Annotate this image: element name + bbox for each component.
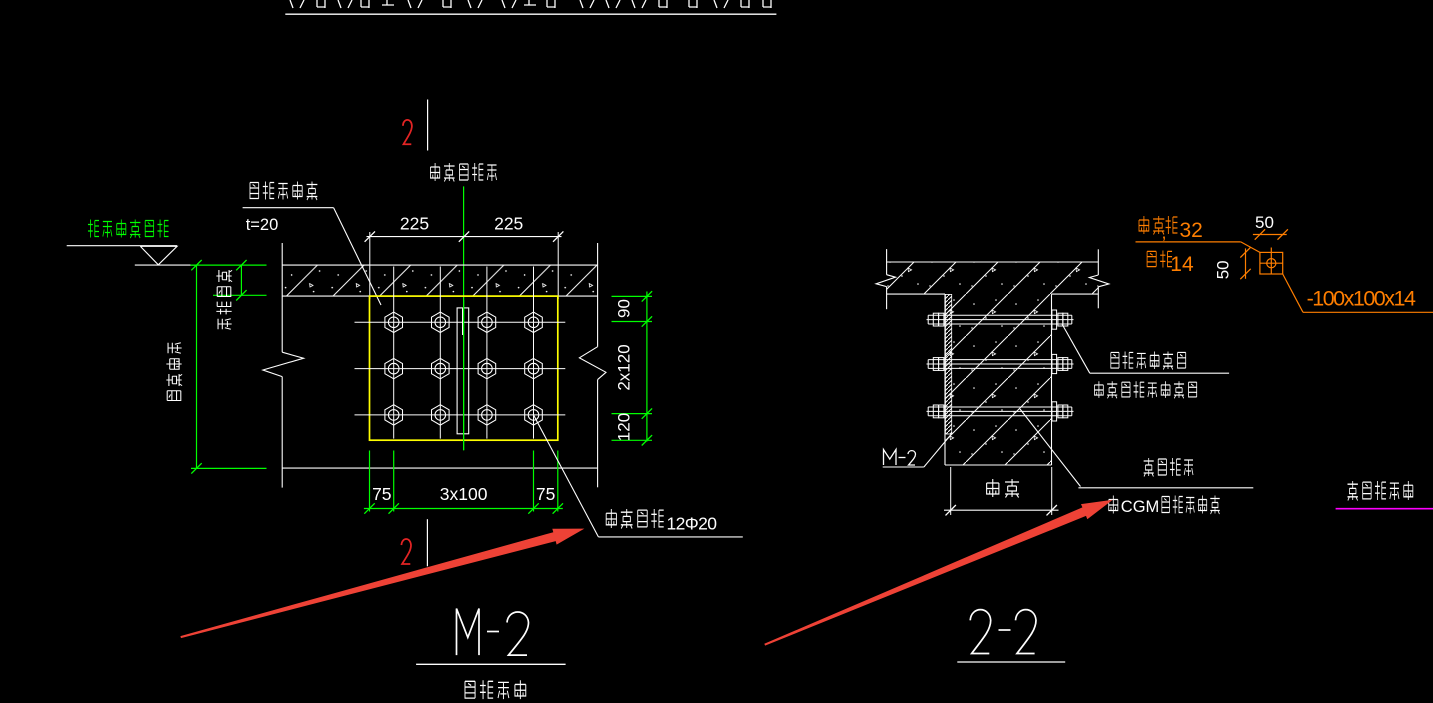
svg-text:t=20: t=20 [246,216,279,234]
svg-text:14: 14 [1170,253,1194,276]
svg-text:90: 90 [615,299,634,318]
svg-text:50: 50 [1214,260,1233,279]
svg-text:120: 120 [615,413,634,441]
svg-text:225: 225 [400,214,429,234]
svg-text:3x100: 3x100 [440,484,488,504]
svg-text:-100x100x14: -100x100x14 [1307,287,1416,311]
svg-text:12Φ20: 12Φ20 [667,514,718,534]
svg-text:32: 32 [1180,219,1203,242]
svg-text:,: , [1162,223,1167,243]
svg-text:75: 75 [372,484,391,504]
svg-text:2x120: 2x120 [615,344,634,390]
svg-text:225: 225 [494,214,523,234]
svg-text:CGM: CGM [1121,498,1160,516]
svg-text:75: 75 [536,484,555,504]
